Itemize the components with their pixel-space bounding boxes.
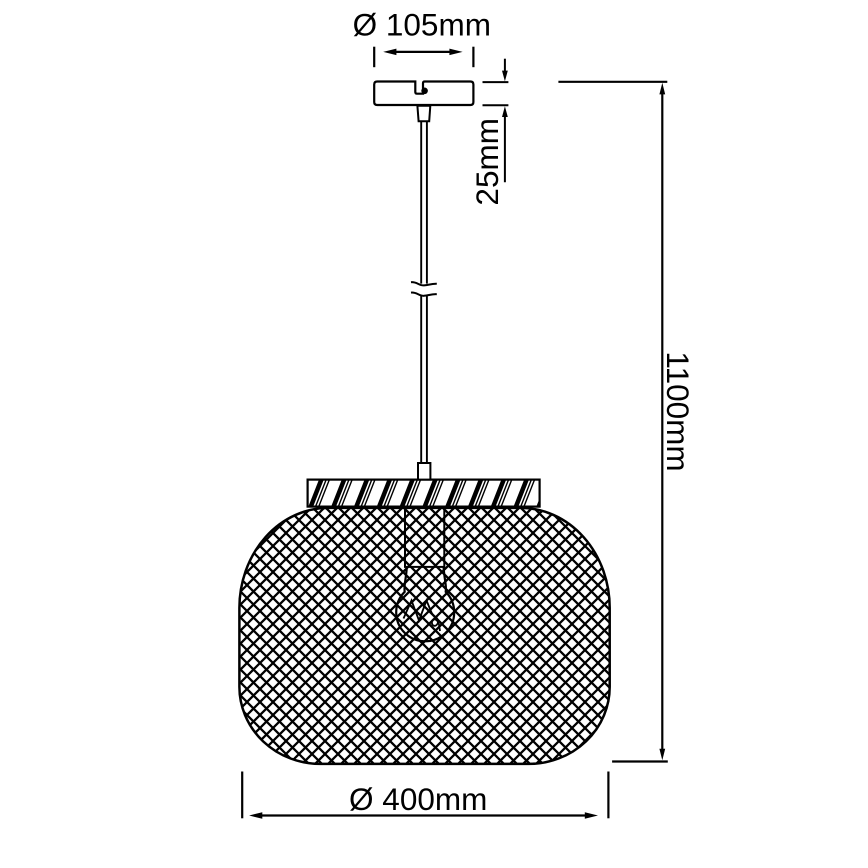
svg-text:25mm: 25mm — [469, 118, 505, 206]
svg-text:1100mm: 1100mm — [660, 351, 696, 471]
svg-text:Ø 105mm: Ø 105mm — [353, 7, 491, 43]
svg-text:Ø 400mm: Ø 400mm — [349, 781, 487, 817]
